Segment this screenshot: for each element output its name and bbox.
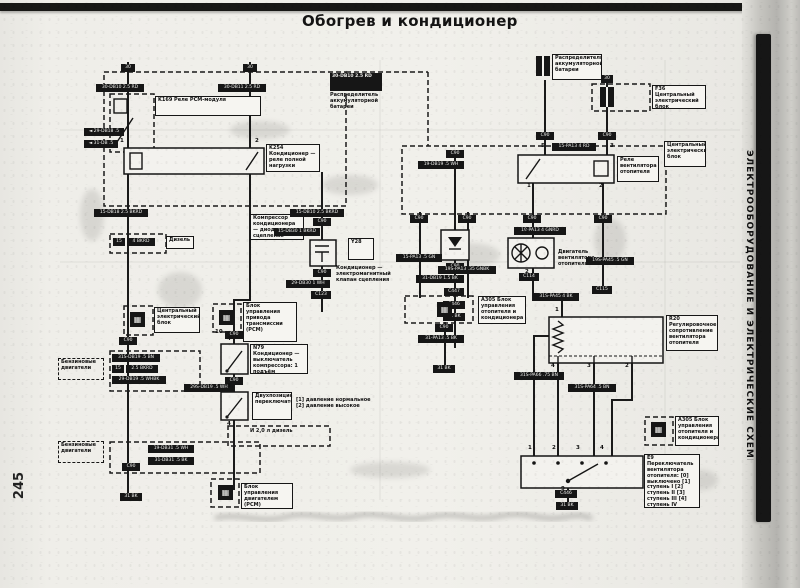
pin-number: 2 xyxy=(254,139,260,145)
wire-label: 30 xyxy=(601,75,613,83)
pin-number: 3 xyxy=(575,446,581,452)
pcm-engine-label: Блок управления двигателем (PCM) xyxy=(241,483,293,509)
diesel-note: И 2,0 л дизель xyxy=(250,429,294,441)
wire-label: 2.5 BKRD xyxy=(126,365,158,373)
battery-distributor-left-label: Распределитель аккумуляторной батареи xyxy=(330,93,386,121)
two-position-switch-label: Двухпозиционный переключатель xyxy=(252,392,292,420)
wire-label: 31S-DB19 .5 BN xyxy=(112,354,160,362)
wire-label: 31-DB31 .5 BK xyxy=(148,457,194,465)
cec-right-label: Центральный электрический блок xyxy=(664,141,706,167)
battery-distributor-left-header: 30-DB10 2.5 RD xyxy=(330,73,382,91)
wire-label: 31S-PA64 .5 BN xyxy=(568,384,616,392)
component-bodies xyxy=(124,148,663,488)
wire-label: 15-DB18 2.5 BKRD xyxy=(94,209,148,217)
pin-number: 3 xyxy=(609,144,615,150)
pin-number: 4 xyxy=(550,364,556,370)
wire-label: ◄ 31-DB .5 xyxy=(84,140,118,148)
side-tab-label: ЭЛЕКТРООБОРУДОВАНИЕ И ЭЛЕКТРИЧЕСКИЕ СХЕМ… xyxy=(744,150,754,460)
scanned-manual-page: Обогрев и кондиционер 245 xyxy=(0,0,800,588)
pin-number: 4 xyxy=(599,446,605,452)
compressor-diode-label: Компрессор кондиционера — диод сцепления xyxy=(250,214,304,240)
pin-number: 1 xyxy=(526,184,532,190)
wire-label: C447 xyxy=(444,288,464,296)
wire-label: 15 xyxy=(112,365,124,373)
wire-label: C90 xyxy=(313,218,331,226)
cec-f36-label: F36 Центральный электрический блок xyxy=(652,85,706,109)
wire-label: C90 xyxy=(313,269,331,277)
pin-number: 2 xyxy=(551,446,557,452)
pressure-legend: [1] давление нормальное [2] давление выс… xyxy=(296,398,378,414)
y28-code-label: Y28 xyxy=(348,238,374,260)
wire-label: 30 xyxy=(243,64,257,72)
wire-label: 15-PA13 4 RD xyxy=(552,143,596,151)
wire-label: C90 xyxy=(523,215,541,223)
cec-left-label: Центральный электрический блок xyxy=(154,307,200,333)
pin-number: 10 xyxy=(214,330,224,336)
wire-label: 29-DB30 1 WH xyxy=(286,280,330,288)
wire-label: C90 xyxy=(458,215,476,223)
wire-label: 19-DB31 .5 WH xyxy=(148,445,194,453)
wire-label: 30 xyxy=(121,64,135,72)
wire-label: 15-DB10 2.5 BKRD xyxy=(290,209,344,217)
wire-label: 19-DB19 .5 WH xyxy=(418,161,464,169)
wire-label: C123 xyxy=(311,291,331,299)
wire-label: 15-DB30 1 BKRD xyxy=(274,228,320,236)
pin-number: 1 xyxy=(554,308,560,314)
wire-label: 30-DB10 2.5 RD xyxy=(96,84,144,92)
wire-label: C90 xyxy=(410,215,428,223)
pcm-engine-icon: ▦ xyxy=(218,485,233,500)
pin-number: 2 xyxy=(598,184,604,190)
fan-switch-label: E9 Переключатель вентилятора отопителя: … xyxy=(644,454,700,508)
wire-label: 31-DB19 1.5 BK xyxy=(416,275,464,283)
wire-label: C90 xyxy=(119,337,137,345)
wiring-diagram: K169 Реле PCM-модуля30-DB10 2.5 RDРаспре… xyxy=(0,0,800,588)
a305-mid-icon: ▦ xyxy=(437,302,452,317)
wire-label: 15-PA13 .5 GN xyxy=(396,254,442,262)
compressor-switch-label: N79 Кондиционер — выключатель компрессор… xyxy=(250,344,308,374)
wire-label: 30-DB11 2.5 RD xyxy=(218,84,266,92)
pin-number: 1 xyxy=(524,230,530,236)
pcm-transmission-icon: ▦ xyxy=(219,310,234,325)
pin-number: 2 xyxy=(624,364,630,370)
battery-distributor-right-label: Распределитель аккумуляторной батареи xyxy=(552,54,602,80)
wire-label: 19S-PA13 .35 GNBK xyxy=(438,266,496,274)
wire-label: ◄ 29-DB18 .5 xyxy=(84,128,124,136)
battery-distributor-fuse xyxy=(536,56,550,76)
ac-full-load-relay-label: K254 Кондиционер — реле полной нагрузки xyxy=(266,144,320,172)
a305-mid-label: A305 Блок управления отопителя и кондици… xyxy=(478,296,526,324)
wire-label: 31S-PA45 4 BK xyxy=(533,293,579,301)
fuse-f36 xyxy=(600,87,614,107)
pin-number: 1 xyxy=(527,446,533,452)
pin-number: 4 xyxy=(226,337,232,343)
pin-number: 2 xyxy=(524,270,530,276)
wire-label: C90 xyxy=(598,132,616,140)
wire-label: C90 xyxy=(435,324,453,332)
pin-number: 1 xyxy=(119,139,125,145)
petrol-engines-label-1: Бензиновые двигатели xyxy=(58,358,104,380)
pin-number: 9 xyxy=(560,487,566,493)
wire-label: 31 BK xyxy=(120,493,142,501)
wire-label: C446 xyxy=(555,490,577,498)
pin-number: 5 xyxy=(540,144,546,150)
diesel-label: Дизель xyxy=(166,236,194,249)
a305-bottom-label: A305 Блок управления отопителя и кондици… xyxy=(675,416,719,446)
wire-label: C90 xyxy=(594,215,612,223)
wire-label: 31S-PA66 .75 BN xyxy=(514,372,564,380)
cec-left-icon: ▦ xyxy=(130,312,145,327)
wire-label: 15 xyxy=(113,238,125,246)
relay-pcm-label: K169 Реле PCM-модуля xyxy=(155,96,261,116)
wire-label: C90 xyxy=(536,132,554,140)
caption-smudge xyxy=(215,514,592,519)
wire-label: 31-PA13 .5 BK xyxy=(418,335,464,343)
pin-number: 3 xyxy=(226,384,232,390)
heater-fan-relay-label: Реле вентилятора отопителя xyxy=(617,156,659,182)
wire-label: 19-PA13 4 GNRD xyxy=(514,227,566,235)
wire-label: 4 BKRD xyxy=(127,238,155,246)
binder-bar xyxy=(756,34,771,522)
y28-valve-label: Кондиционер — электромагнитный клапан сц… xyxy=(336,266,390,292)
pin-number: 3 xyxy=(586,364,592,370)
wire-label: C115 xyxy=(592,286,612,294)
wire-label: 19S-PA45 .5 GN xyxy=(586,257,634,265)
wire-label: C90 xyxy=(446,150,464,158)
wire-label: 29-DB19 .5 WHBK xyxy=(112,376,166,384)
r20-resistor-label: R20 Регулировочное сопротивление вентиля… xyxy=(666,315,718,351)
wire-label: C90 xyxy=(122,463,140,471)
petrol-engines-label-2: Бензиновые двигатели xyxy=(58,441,104,463)
pcm-transmission-label: Блок управления привода трансмиссии (PCM… xyxy=(243,302,297,342)
a305-bottom-icon: ▦ xyxy=(651,422,666,437)
wire-label: 31 BK xyxy=(556,502,578,510)
pin-number: 4 xyxy=(226,422,232,428)
wire-label: 31 BK xyxy=(433,365,455,373)
